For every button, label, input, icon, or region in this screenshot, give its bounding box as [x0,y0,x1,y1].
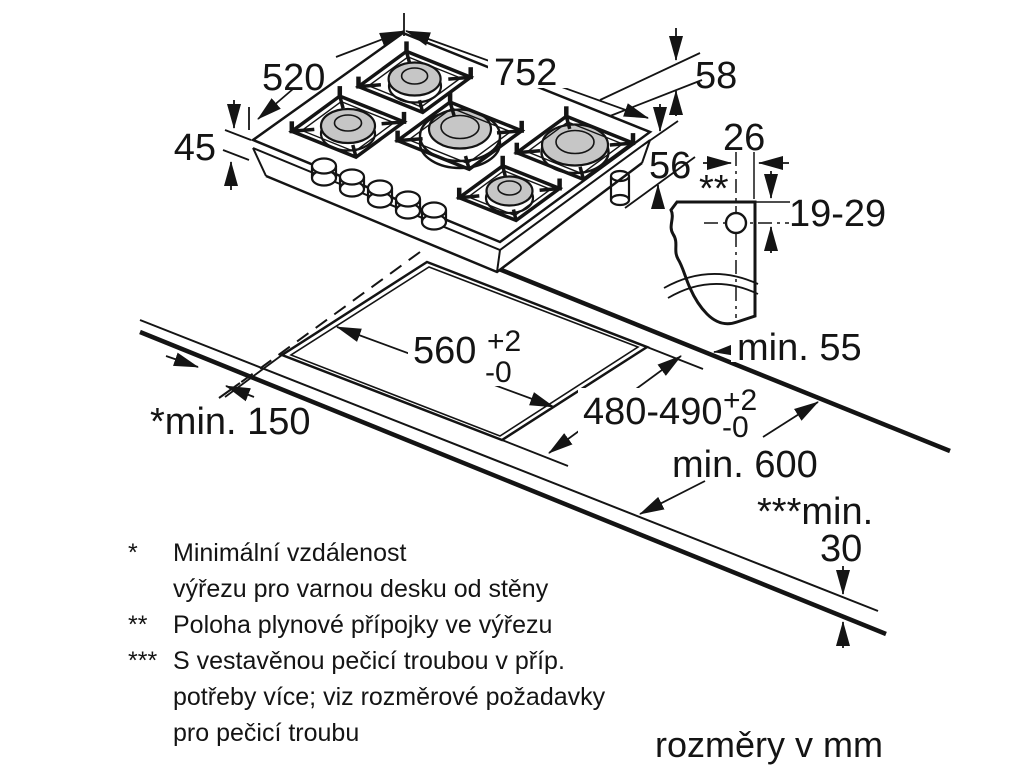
dim-label-560: 560 [413,330,476,372]
footnote-2-marker: ** [128,607,173,643]
dim-label-min600: min. 600 [672,444,818,486]
tick-45-bottom [223,150,249,160]
footnote-2-line-1: Poloha plynové přípojky ve výřezu [173,607,552,643]
footnote-3: *** S vestavěnou pečicí troubou v příp. … [128,643,605,751]
dim-label-752: 752 [494,52,557,94]
footnote-3-marker: *** [128,643,173,751]
footnote-1: * Minimální vzdálenost výřezu pro varnou… [128,535,605,607]
tick-45-top [225,130,251,140]
knob-5 [422,203,446,230]
footnote-2: ** Poloha plynové přípojky ve výřezu [128,607,605,643]
burner-front-left [321,109,375,151]
footnote-1-marker: * [128,535,173,607]
gas-connection-detail: 26 ** 19-29 [664,117,886,324]
ext-line-58-top [600,53,700,100]
dim-label-520: 520 [262,57,325,99]
installation-diagram: 752 520 45 58 56 [0,0,1024,768]
footnote-1-line-2: výřezu pro varnou desku od stěny [173,571,548,607]
dim-label-480-minus: -0 [722,411,749,444]
dim-label-58: 58 [695,55,737,97]
footnote-3-line-1: S vestavěnou pečicí troubou v příp. [173,643,605,679]
gas-inlet-circle [726,213,746,233]
footnote-3-line-2: potřeby více; viz rozměrové požadavky [173,679,605,715]
knob-2 [340,170,364,197]
dim-label-560-minus: -0 [485,356,512,389]
footnotes: * Minimální vzdálenost výřezu pro varnou… [128,535,605,751]
dim-label-560-plus: +2 [487,325,521,358]
gas-marker-label: ** [699,168,729,210]
arrow-min150-right [226,386,254,397]
footnote-1-line-1: Minimální vzdálenost [173,535,548,571]
dim-label-56: 56 [649,145,691,187]
cutout-edge-extension [225,355,282,397]
dim-label-26: 26 [723,117,765,159]
dim-label-45: 45 [174,127,216,169]
units-note: rozměry v mm [655,724,883,766]
footnote-3-line-3: pro pečicí troubu [173,715,605,751]
arrow-min600-up [763,402,818,437]
dim-label-min150: *min. 150 [150,401,311,443]
knob-3 [368,181,392,208]
dim-label-480-490: 480-490 [583,391,722,433]
ext-line-58-bottom [610,80,702,116]
dim-label-19-29: 19-29 [789,193,886,235]
arrow-min150-left [166,356,198,367]
dim-label-min55: min. 55 [737,327,862,369]
knob-4 [396,192,420,219]
side-wall-dashed-line [240,252,420,383]
dim-label-min30-line2: 30 [820,528,862,570]
dim-label-min30-line1: ***min. [757,491,873,533]
ext-line-480-bottom [502,440,568,466]
knob-1 [312,159,336,186]
